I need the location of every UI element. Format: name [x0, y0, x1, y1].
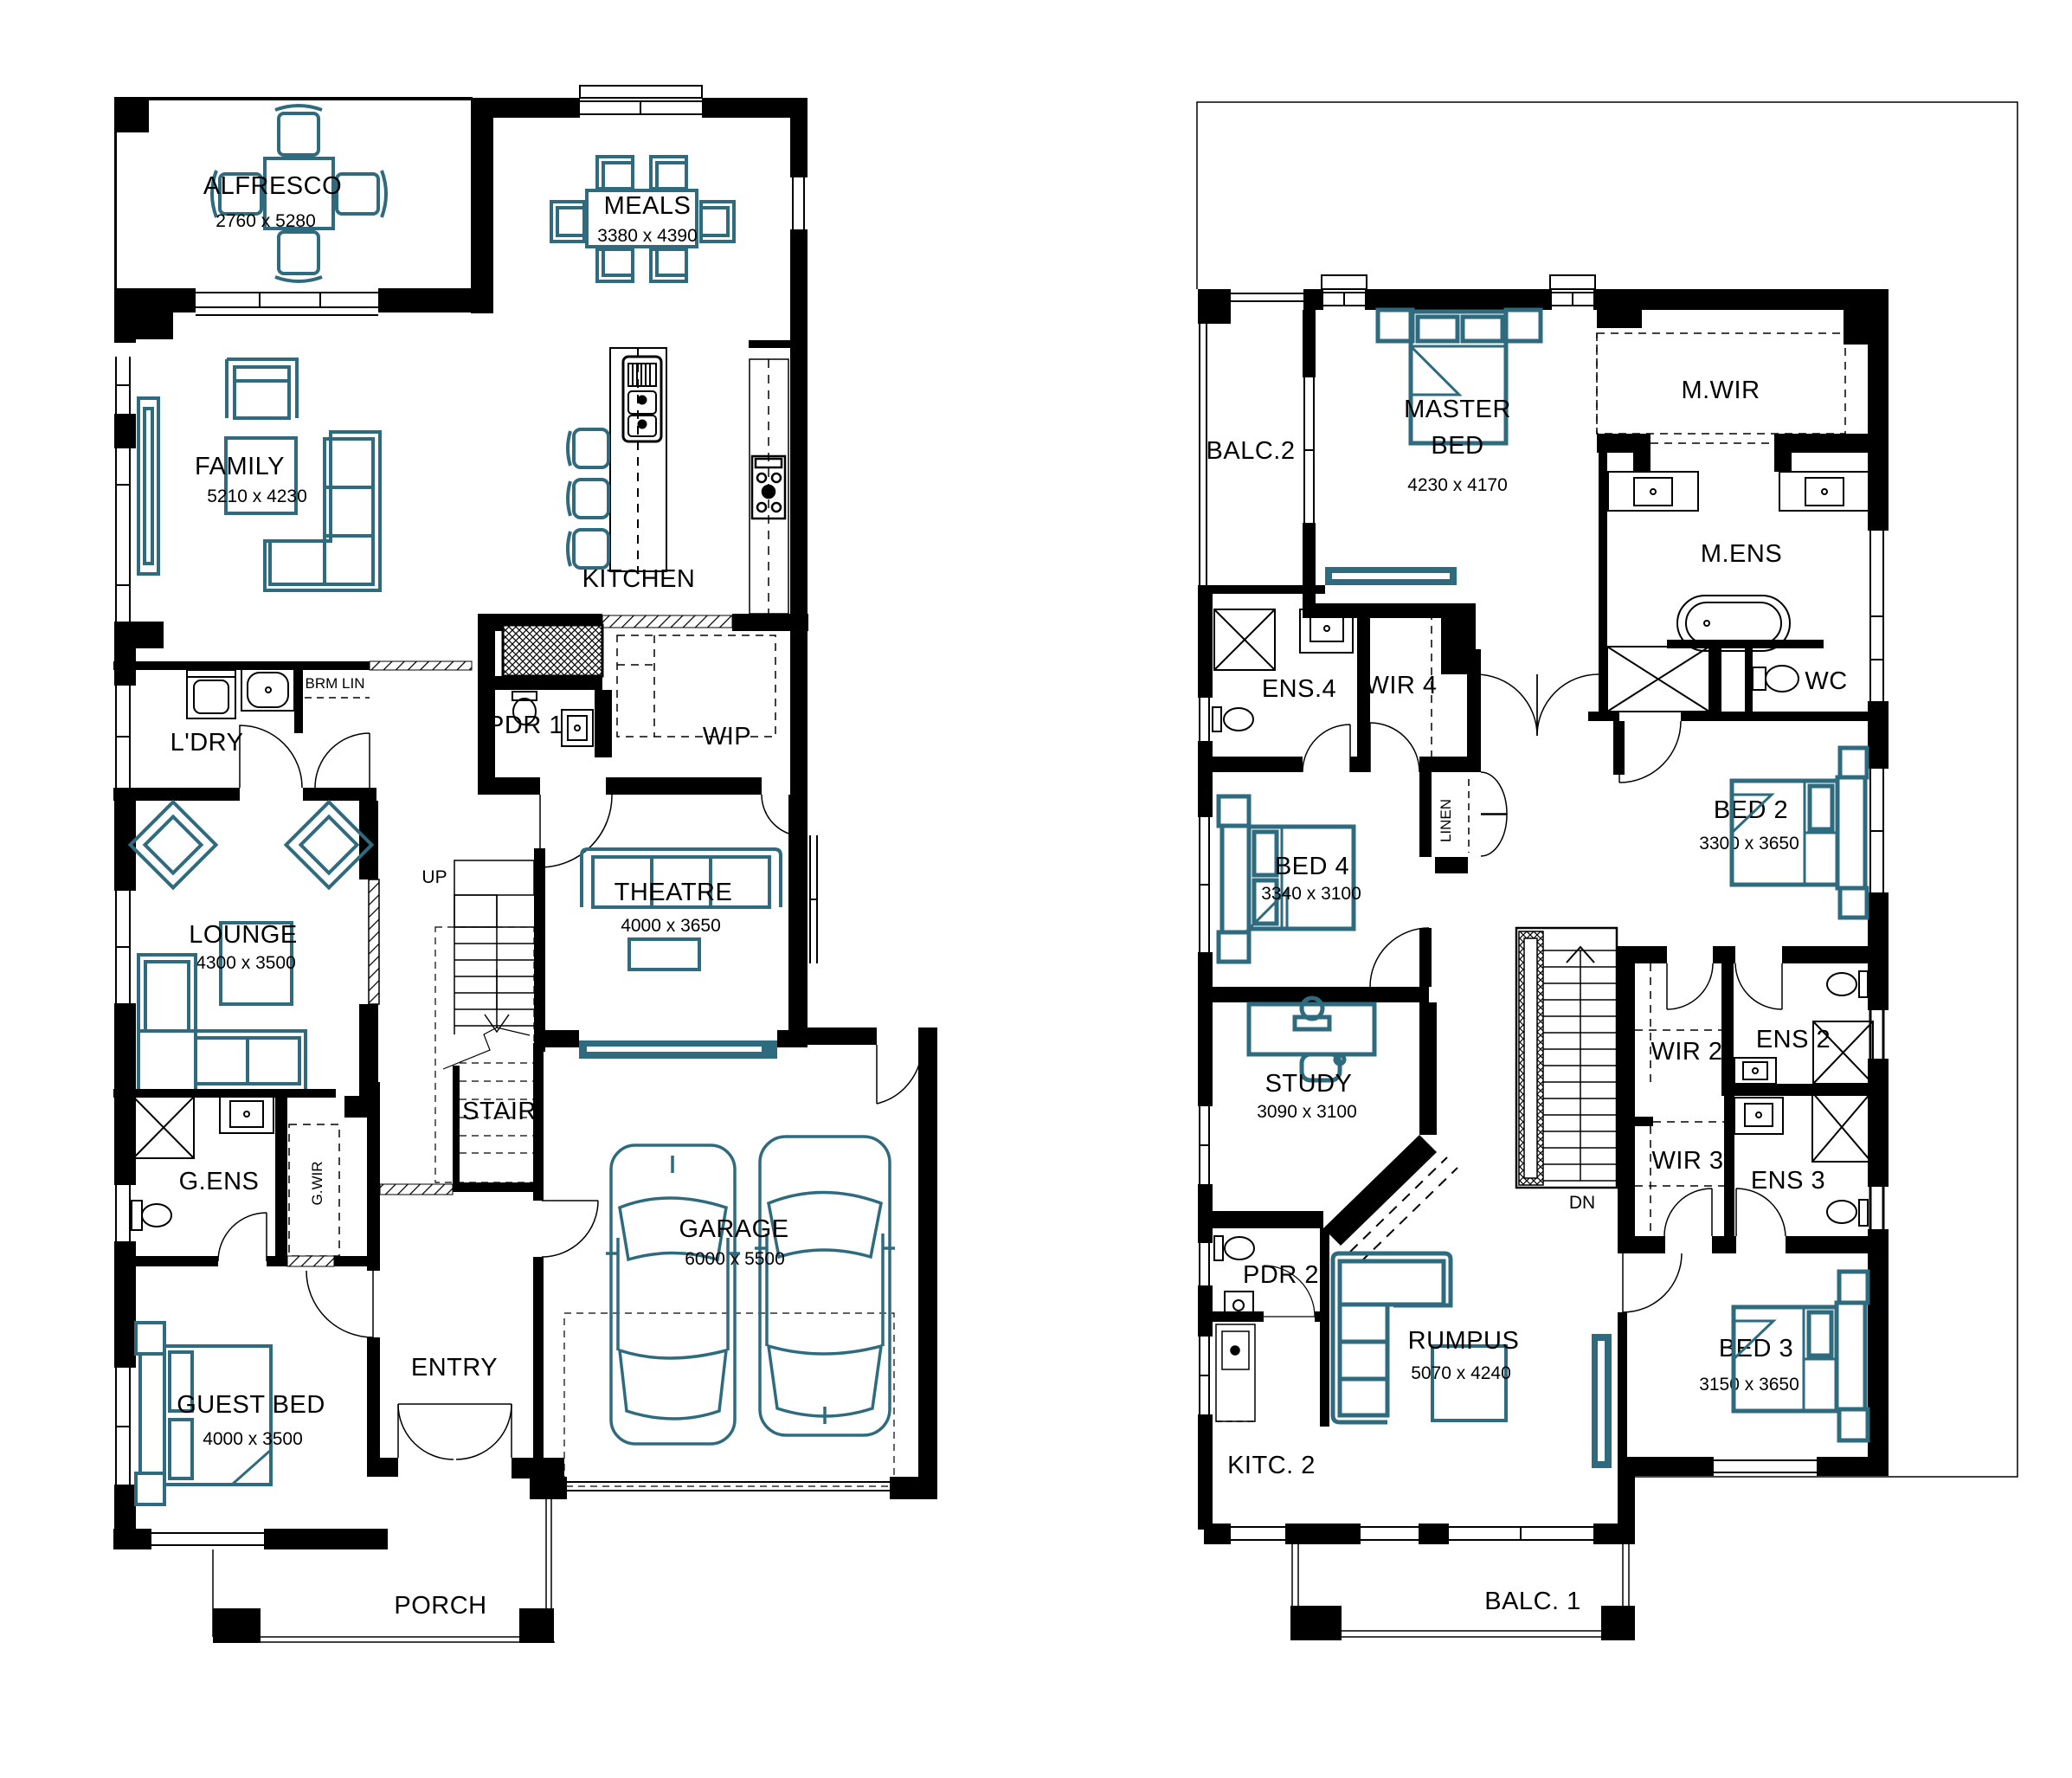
svg-text:MEALS: MEALS — [604, 192, 692, 220]
svg-text:WIR 2: WIR 2 — [1651, 1038, 1722, 1066]
svg-text:3150 x 3650: 3150 x 3650 — [1699, 1375, 1799, 1395]
svg-text:ENTRY: ENTRY — [411, 1354, 498, 1382]
svg-text:3340 x 3100: 3340 x 3100 — [1261, 884, 1361, 904]
svg-text:MASTER: MASTER — [1404, 396, 1511, 423]
svg-text:ENS.4: ENS.4 — [1262, 675, 1336, 703]
svg-text:4000 x 3500: 4000 x 3500 — [203, 1429, 303, 1449]
svg-text:KITCHEN: KITCHEN — [582, 565, 696, 593]
svg-text:RUMPUS: RUMPUS — [1408, 1327, 1520, 1355]
svg-text:THEATRE: THEATRE — [615, 879, 733, 906]
svg-text:ALFRESCO: ALFRESCO — [203, 172, 342, 200]
svg-text:4300 x 3500: 4300 x 3500 — [196, 953, 296, 973]
svg-text:WIR 3: WIR 3 — [1651, 1147, 1723, 1175]
svg-text:LOUNGE: LOUNGE — [189, 921, 297, 949]
svg-text:GUEST BED: GUEST BED — [177, 1391, 325, 1419]
svg-text:GARAGE: GARAGE — [679, 1215, 788, 1243]
svg-text:BRM LIN: BRM LIN — [306, 675, 365, 692]
svg-text:FAMILY: FAMILY — [195, 453, 285, 480]
svg-text:PDR 1: PDR 1 — [487, 712, 563, 739]
svg-text:5210 x 4230: 5210 x 4230 — [207, 486, 307, 506]
svg-text:4230 x 4170: 4230 x 4170 — [1407, 475, 1508, 495]
svg-text:ENS 3: ENS 3 — [1751, 1167, 1825, 1195]
svg-text:DN: DN — [1569, 1193, 1595, 1213]
svg-text:3090 x 3100: 3090 x 3100 — [1257, 1102, 1357, 1122]
svg-text:WIR 4: WIR 4 — [1365, 672, 1437, 699]
svg-text:UP: UP — [421, 867, 447, 887]
svg-text:5070 x 4240: 5070 x 4240 — [1411, 1363, 1511, 1383]
svg-text:G.WIR: G.WIR — [309, 1162, 325, 1206]
svg-text:STUDY: STUDY — [1265, 1070, 1353, 1098]
svg-text:BALC.2: BALC.2 — [1207, 437, 1296, 465]
svg-text:LINEN: LINEN — [1438, 799, 1454, 842]
svg-text:WC: WC — [1805, 667, 1847, 695]
svg-text:KITC. 2: KITC. 2 — [1227, 1452, 1316, 1479]
svg-text:BALC. 1: BALC. 1 — [1484, 1588, 1581, 1615]
svg-text:PDR 2: PDR 2 — [1243, 1261, 1319, 1289]
svg-text:BED 2: BED 2 — [1714, 796, 1788, 824]
svg-text:ENS 2: ENS 2 — [1756, 1026, 1831, 1053]
svg-text:6000 x 5500: 6000 x 5500 — [685, 1249, 785, 1269]
svg-text:2760 x 5280: 2760 x 5280 — [216, 211, 316, 231]
svg-text:STAIR: STAIR — [462, 1098, 537, 1125]
svg-text:M.WIR: M.WIR — [1681, 377, 1760, 404]
svg-text:G.ENS: G.ENS — [179, 1168, 260, 1195]
svg-text:L'DRY: L'DRY — [171, 729, 244, 757]
svg-text:M.ENS: M.ENS — [1701, 540, 1782, 568]
svg-text:4000 x 3650: 4000 x 3650 — [621, 916, 721, 936]
svg-text:3380 x 4390: 3380 x 4390 — [597, 226, 698, 246]
svg-text:3300 x 3650: 3300 x 3650 — [1699, 834, 1799, 854]
svg-text:BED 4: BED 4 — [1275, 853, 1349, 880]
svg-text:WIP: WIP — [703, 723, 751, 750]
svg-text:PORCH: PORCH — [394, 1592, 486, 1620]
svg-text:BED: BED — [1431, 432, 1483, 460]
